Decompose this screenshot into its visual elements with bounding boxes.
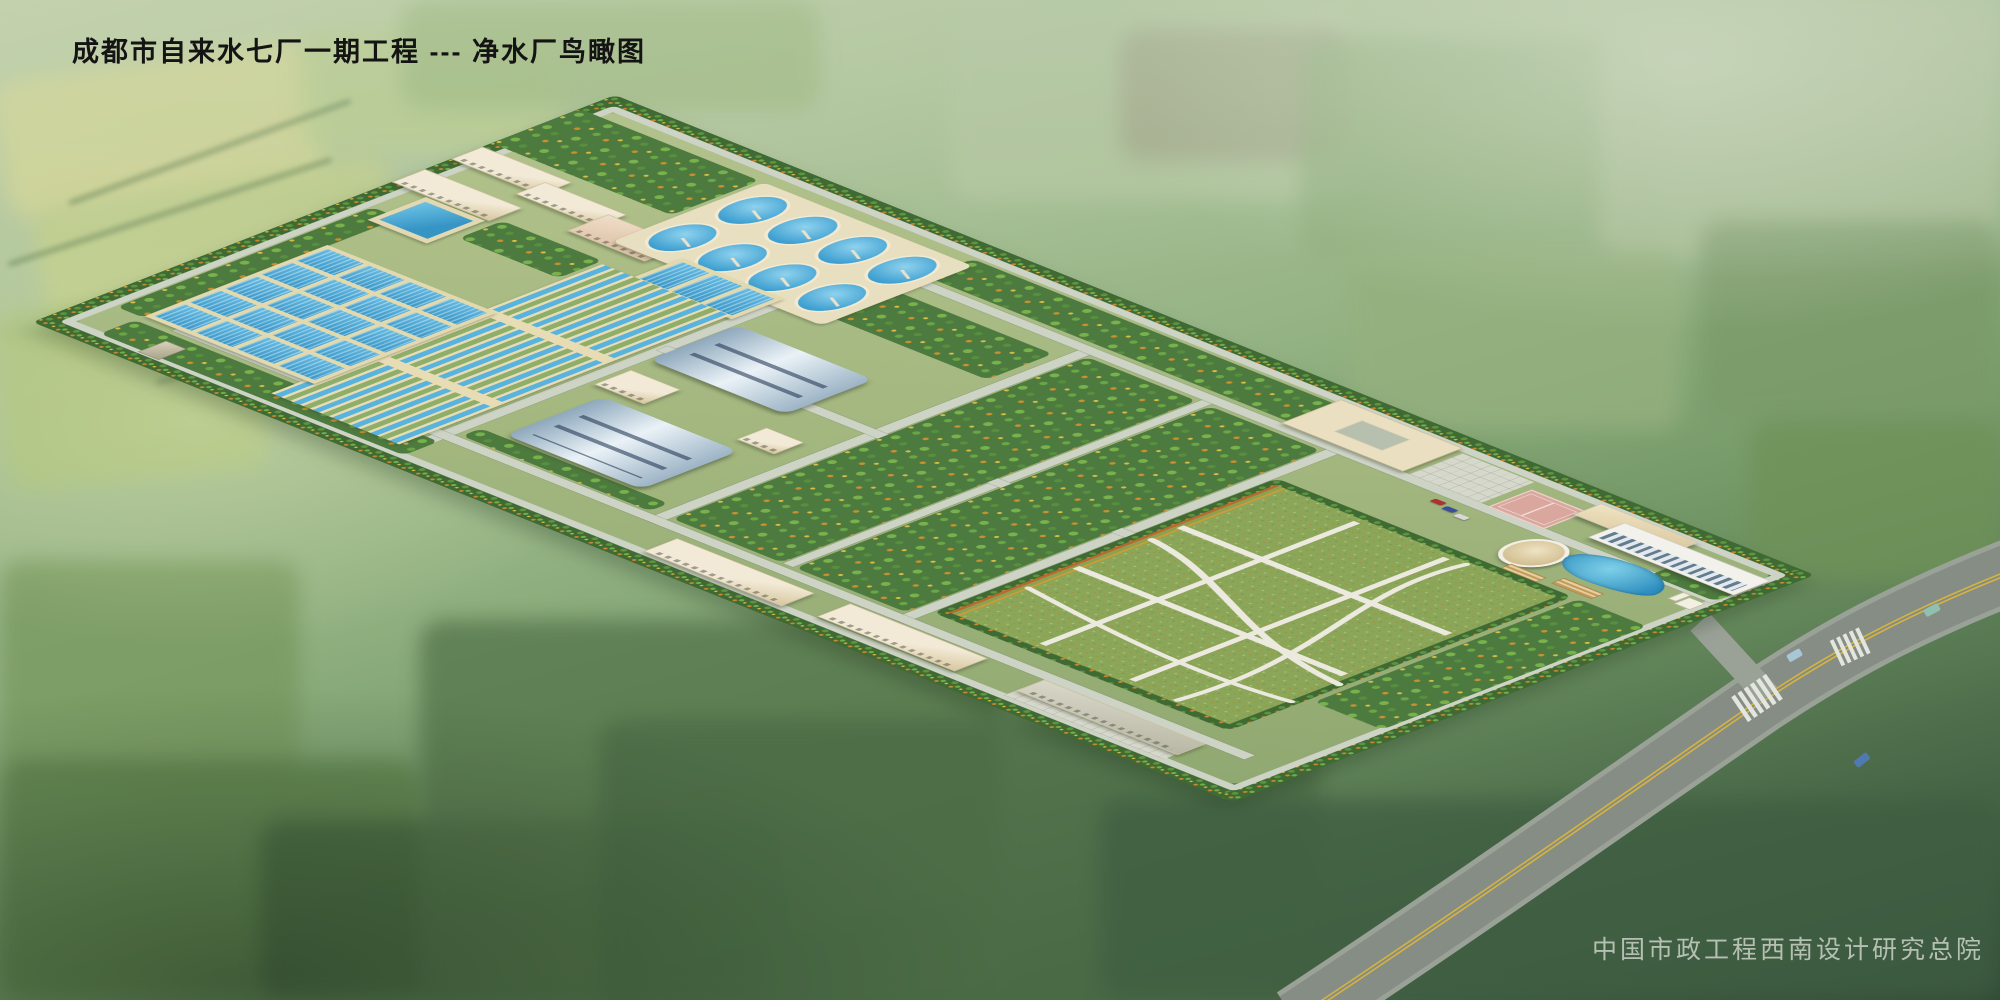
car-on-road [1853,752,1871,768]
curved-path [1063,540,1427,685]
aerial-rendering-canvas: 成都市自来水七厂一期工程 --- 净水厂鸟瞰图 中国市政工程西南设计研究总院 [0,0,2000,1000]
credit-caption: 中国市政工程西南设计研究总院 [1592,930,1984,966]
curved-path [1144,563,1499,702]
title-caption: 成都市自来水七厂一期工程 --- 净水厂鸟瞰图 [72,30,646,69]
curved-path [1010,588,1302,705]
